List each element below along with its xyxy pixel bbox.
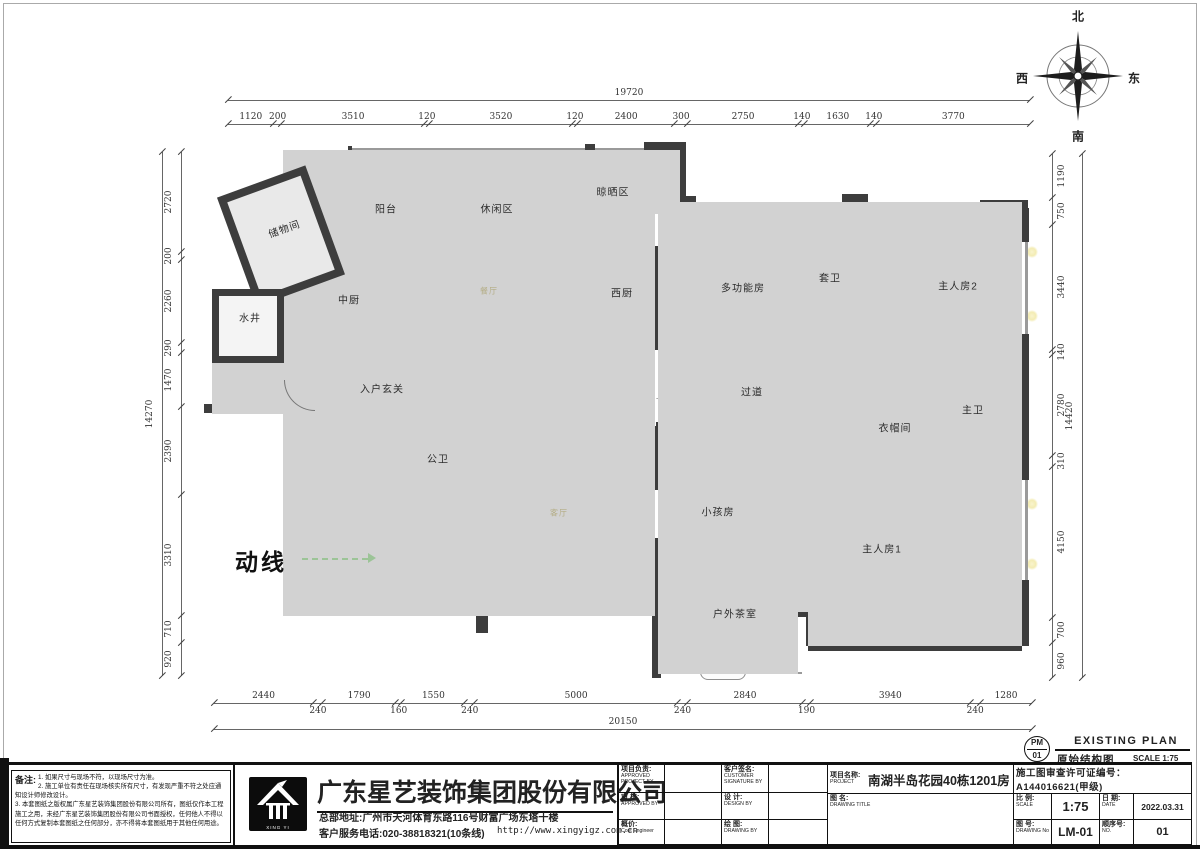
drawing-sheet: 储物间 阳台 休闲区 晾晒区 水井 中厨 西厨 餐厅 多功能房 套卫 主人房2 … xyxy=(0,0,1200,849)
field-date: 日 期: DATE xyxy=(1100,794,1134,820)
company-website: http://www.xingyigz.com.cn xyxy=(497,826,638,836)
dimension-value: 750 xyxy=(1057,202,1067,219)
dimension-value: 710 xyxy=(164,621,174,638)
dimension-tick xyxy=(1078,674,1085,681)
field-drawing-by: 绘 图: DRAWING BY xyxy=(722,820,769,845)
dimension-value: 1550 xyxy=(422,691,445,701)
company-logo-icon xyxy=(249,777,307,831)
notes-label: 备注: xyxy=(15,773,36,786)
field-audit-value[interactable] xyxy=(665,793,722,820)
field-design-value[interactable] xyxy=(769,793,828,820)
drawing-code-bottom: 01 xyxy=(1025,750,1049,762)
field-dwgtitle-en: DRAWING TITLE xyxy=(830,803,1011,809)
field-draw-value[interactable] xyxy=(769,820,828,845)
dimension-value: 290 xyxy=(164,339,174,356)
window-line xyxy=(1025,478,1028,582)
dimension-value: 3310 xyxy=(164,544,174,567)
floor-area xyxy=(212,358,287,414)
bottom-edge-bar xyxy=(0,845,1200,849)
field-customer-signature: 客户签名: CUSTOMER SIGNATURE BY xyxy=(722,765,769,793)
flow-legend-arrow xyxy=(302,558,368,560)
compass-east-label: 东 xyxy=(1128,70,1140,87)
field-dwgno-en: DRAWING No xyxy=(1016,829,1049,835)
field-drawing-no: 图 号: DRAWING No xyxy=(1014,820,1052,845)
dimension-value: 310 xyxy=(1057,453,1067,470)
company-phone: 客户服务电话:020-38818321(10条线) xyxy=(319,825,485,840)
note-line-3: 3. 本套图纸之版权属广东星艺装饰集团股份有限公司所有，图纸仅作本工程施工之用，… xyxy=(15,800,227,827)
floor-area xyxy=(808,428,1022,646)
project-grid: 项目名称: PROJECT 南湖半岛花园40栋1201房 施工图审查许可证编号：… xyxy=(828,765,1192,845)
dimension-line xyxy=(1052,154,1053,678)
scale-value: 1:75 xyxy=(1052,794,1100,820)
dimension-value: 190 xyxy=(798,706,815,716)
dimension-value: 5000 xyxy=(565,691,588,701)
drawing-code-top: PM xyxy=(1025,737,1049,749)
dimension-tick xyxy=(177,672,184,679)
dimension-value: 240 xyxy=(674,706,691,716)
room-label-cloakroom: 衣帽间 xyxy=(879,420,912,435)
dimension-value: 3770 xyxy=(942,112,965,122)
dimension-value: 14420 xyxy=(1065,402,1075,431)
field-scale: 比 例: SCALE xyxy=(1014,794,1052,820)
compass-west-label: 西 xyxy=(1016,70,1028,87)
room-label-master1: 主人房1 xyxy=(862,541,902,556)
room-label-leisure: 休闲区 xyxy=(481,201,514,216)
field-draw-en: DRAWING BY xyxy=(724,829,766,835)
dimension-value: 1280 xyxy=(995,691,1018,701)
dimension-value: 120 xyxy=(418,112,435,122)
dimension-value: 1790 xyxy=(348,691,371,701)
dimension-value: 19720 xyxy=(615,88,644,98)
title-block: 备注: 1. 如果尺寸与现场不符，以现场尺寸为准。 2. 施工单位有责任在现场核… xyxy=(9,762,1192,845)
room-label-foyer: 入户玄关 xyxy=(360,381,404,396)
drawing-no-value: LM-01 xyxy=(1052,820,1100,845)
dimension-value: 960 xyxy=(1057,652,1067,669)
dimension-value: 3940 xyxy=(879,691,902,701)
dimension-value: 2260 xyxy=(164,289,174,312)
room-label-living: 客厅 xyxy=(550,508,568,519)
room-label-drying: 晾晒区 xyxy=(597,184,630,199)
dimension-value: 2440 xyxy=(252,691,275,701)
room-label-balcony: 阳台 xyxy=(375,201,397,216)
room-label-kids: 小孩房 xyxy=(702,504,735,519)
dimension-line xyxy=(214,729,1032,730)
note-line-1: 1. 如果尺寸与现场不符，以现场尺寸为准。 xyxy=(15,773,227,782)
drawing-title-en: EXISTING PLAN xyxy=(1062,735,1190,747)
dimension-value: 4150 xyxy=(1057,531,1067,554)
field-cost-value[interactable] xyxy=(665,820,722,845)
note-line-2: 2. 施工单位有责任在现场核实所有尺寸，有发现严重不符之处应通知设计师修改设计。 xyxy=(15,782,227,800)
room-label-multifunction: 多功能房 xyxy=(721,280,765,295)
field-drawing-title: 图 名: DRAWING TITLE xyxy=(828,794,1014,845)
dimension-value: 2390 xyxy=(164,439,174,462)
dimension-value: 300 xyxy=(672,112,689,122)
company-logo: XING YI xyxy=(249,777,307,831)
field-audit: 审 核: APPROVED BY xyxy=(619,793,665,820)
dimension-value: 20150 xyxy=(609,717,638,727)
field-seq-no: 顺序号: NO. xyxy=(1100,820,1134,845)
dimension-value: 140 xyxy=(865,112,882,122)
dimension-value: 120 xyxy=(566,112,583,122)
flow-legend-arrowhead xyxy=(368,553,376,563)
room-label-guest-bath: 公卫 xyxy=(427,451,449,466)
room-label-west-kitchen: 西厨 xyxy=(611,285,633,300)
field-audit-en: APPROVED BY xyxy=(621,802,662,808)
permit-number: 施工图审查许可证编号：A144016621(甲级) xyxy=(1014,765,1192,794)
dimension-line xyxy=(1082,154,1083,678)
dimension-value: 1630 xyxy=(826,112,849,122)
floor-plan: 储物间 阳台 休闲区 晾晒区 水井 中厨 西厨 餐厅 多功能房 套卫 主人房2 … xyxy=(0,0,1200,849)
room-label-corridor: 过道 xyxy=(741,384,763,399)
dimension-value: 3510 xyxy=(342,112,365,122)
field-design-en: DESIGN BY xyxy=(724,802,766,808)
company-panel: XING YI 广东星艺装饰集团股份有限公司 总部地址:广州市天河体育东路116… xyxy=(233,765,619,845)
compass-south-label: 南 xyxy=(1072,128,1084,145)
floor-area xyxy=(283,150,655,616)
field-customer-en: CUSTOMER SIGNATURE BY xyxy=(724,774,766,785)
dimension-value: 3520 xyxy=(489,112,512,122)
dimension-value: 240 xyxy=(967,706,984,716)
dimension-value: 1470 xyxy=(164,368,174,391)
field-pm-en: APPROVED PROJECT BY xyxy=(621,774,662,785)
dimension-value: 1120 xyxy=(239,112,262,122)
project-name-value: 南湖半岛花园40栋1201房 xyxy=(868,770,1010,789)
compass-rose xyxy=(1030,28,1126,124)
date-value: 2022.03.31 xyxy=(1134,794,1192,820)
signature-grid: 项目负责: APPROVED PROJECT BY 客户签名: CUSTOMER… xyxy=(619,765,828,845)
field-customer-value[interactable] xyxy=(769,765,828,793)
dimension-value: 140 xyxy=(1057,343,1067,360)
dimension-tick xyxy=(1028,699,1035,706)
field-project-en: PROJECT xyxy=(830,780,868,786)
room-label-well: 水井 xyxy=(239,310,261,325)
dimension-value: 3440 xyxy=(1057,276,1067,299)
dimension-value: 240 xyxy=(309,706,326,716)
stamp-underline xyxy=(1055,749,1190,751)
dimension-value: 920 xyxy=(164,651,174,668)
water-well-outline xyxy=(212,289,284,363)
drawing-code-badge: PM 01 xyxy=(1024,736,1050,762)
dimension-line xyxy=(214,703,1032,704)
dimension-value: 1190 xyxy=(1057,164,1067,187)
dimension-tick xyxy=(1028,725,1035,732)
dimension-tick xyxy=(158,672,165,679)
room-label-dining: 餐厅 xyxy=(480,286,498,297)
company-address: 总部地址:广州市天河体育东路116号财富广场东塔十楼 xyxy=(319,809,558,824)
room-label-master-bath: 主卫 xyxy=(962,402,984,417)
dimension-value: 200 xyxy=(269,112,286,122)
room-label-ensuite-bath: 套卫 xyxy=(819,270,841,285)
notes-box: 备注: 1. 如果尺寸与现场不符，以现场尺寸为准。 2. 施工单位有责任在现场核… xyxy=(11,770,231,843)
floor-area xyxy=(658,428,808,612)
flow-line-label: 动线 xyxy=(235,543,287,577)
field-design: 设 计: DESIGN BY xyxy=(722,793,769,820)
field-scale-en: SCALE xyxy=(1016,803,1049,809)
dimension-value: 700 xyxy=(1057,622,1067,639)
room-label-cn-kitchen: 中厨 xyxy=(338,292,360,307)
field-project-manager: 项目负责: APPROVED PROJECT BY xyxy=(619,765,665,793)
seq-no-value: 01 xyxy=(1134,820,1192,845)
dimension-value: 2750 xyxy=(732,112,755,122)
dimension-value: 2720 xyxy=(164,190,174,213)
company-logo-text: XING YI xyxy=(249,825,307,830)
compass: 北 南 西 东 xyxy=(1030,28,1126,124)
field-cost-en: Cost Engineer xyxy=(621,829,662,835)
room-label-master2: 主人房2 xyxy=(938,278,978,293)
dimension-value: 2840 xyxy=(734,691,757,701)
dimension-value: 200 xyxy=(164,247,174,264)
dimension-line xyxy=(181,152,182,676)
dimension-line xyxy=(228,100,1030,101)
dimension-value: 140 xyxy=(793,112,810,122)
dimension-value: 160 xyxy=(390,706,407,716)
field-date-en: DATE xyxy=(1102,803,1131,809)
window-line xyxy=(1025,240,1028,336)
dimension-tick xyxy=(1048,674,1055,681)
dimension-line xyxy=(162,152,163,676)
left-edge-bar xyxy=(0,758,9,849)
dimension-line xyxy=(228,124,1030,125)
field-pm-value[interactable] xyxy=(665,765,722,793)
field-seq-en: NO. xyxy=(1102,829,1131,835)
room-label-tea-room: 户外茶室 xyxy=(713,606,757,621)
field-project: 项目名称: PROJECT 南湖半岛花园40栋1201房 xyxy=(828,765,1014,794)
compass-north-label: 北 xyxy=(1072,8,1084,25)
company-name: 广东星艺装饰集团股份有限公司 xyxy=(317,773,613,813)
dimension-value: 240 xyxy=(461,706,478,716)
dimension-value: 14270 xyxy=(145,400,155,429)
field-cost: 概价: Cost Engineer xyxy=(619,820,665,845)
dimension-value: 2400 xyxy=(615,112,638,122)
